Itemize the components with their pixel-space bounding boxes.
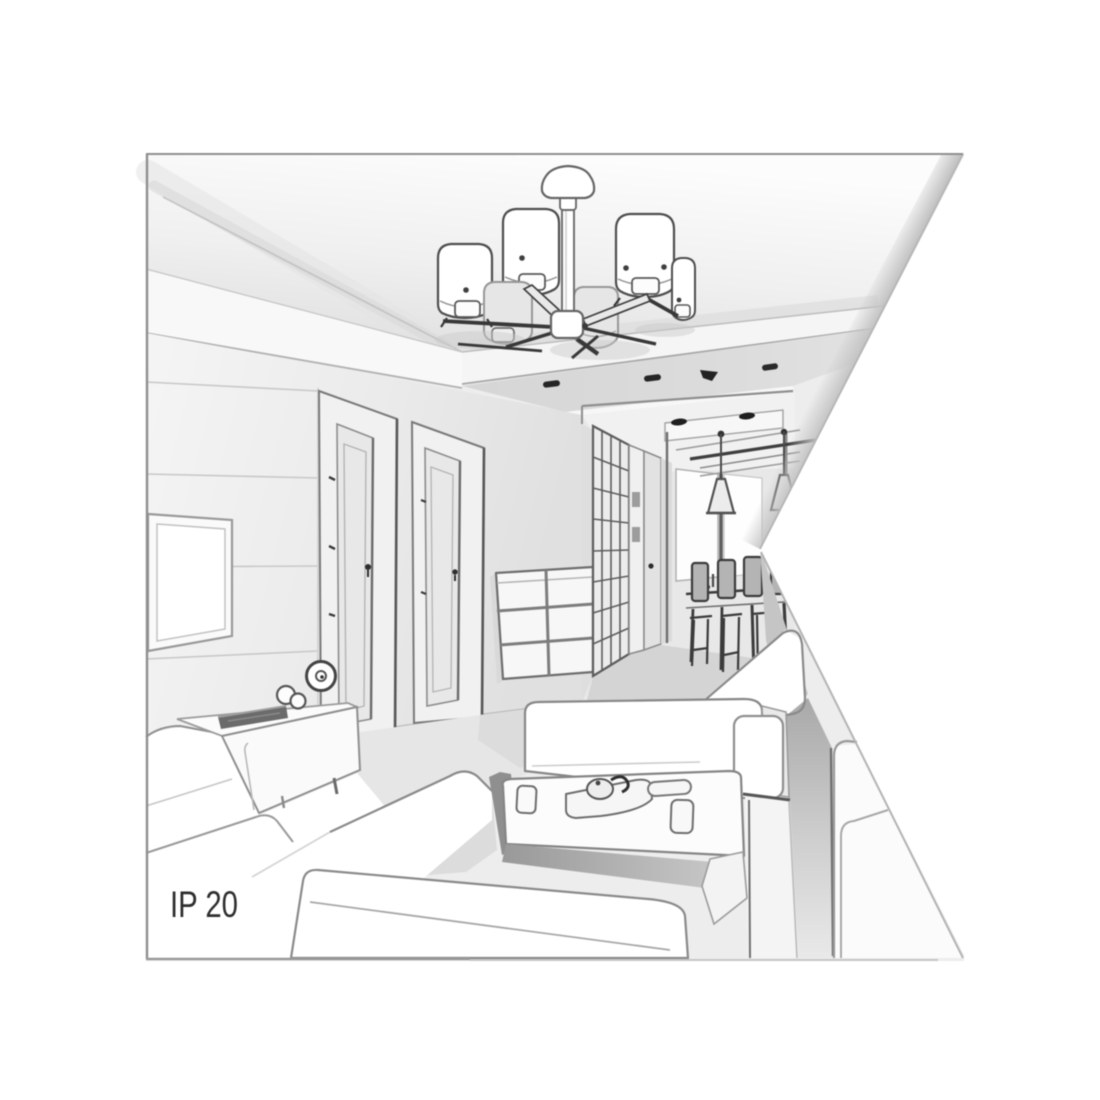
svg-text:IP 20: IP 20	[170, 884, 238, 925]
